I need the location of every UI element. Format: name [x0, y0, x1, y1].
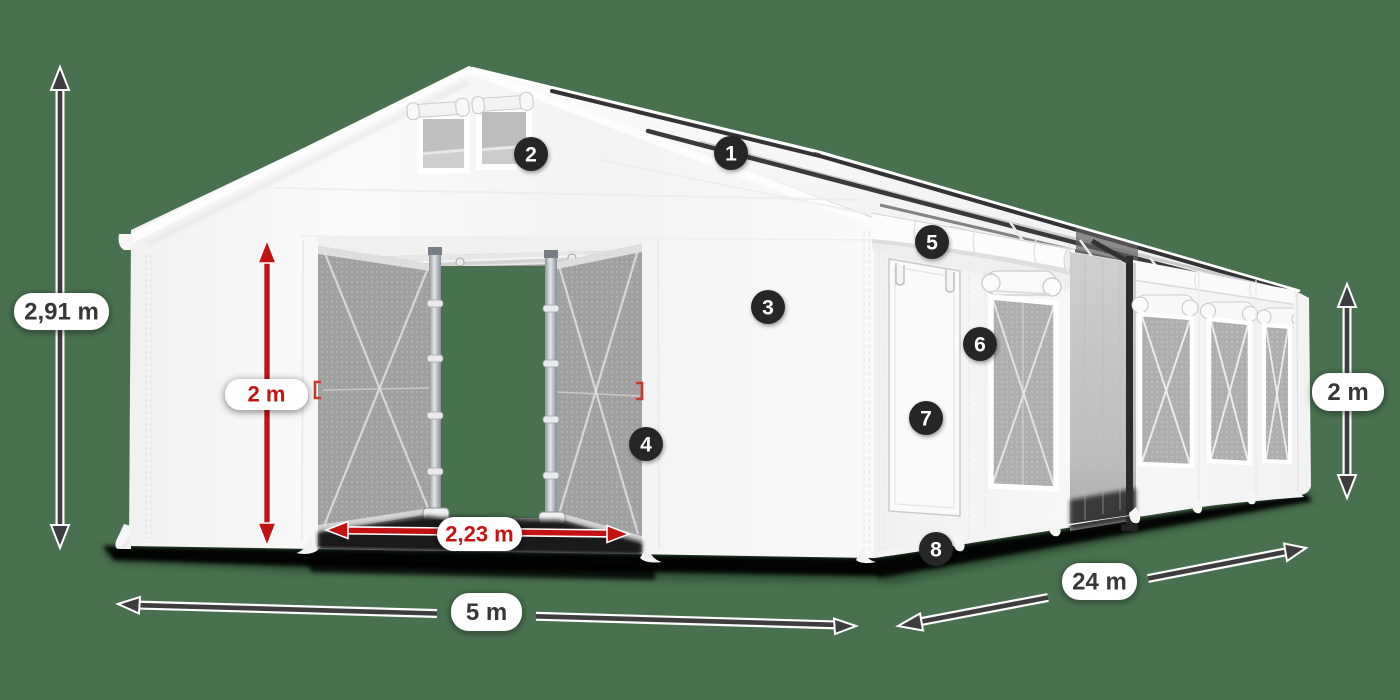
svg-text:7: 7 [920, 408, 932, 431]
svg-text:3: 3 [762, 297, 774, 320]
svg-text:5 m: 5 m [466, 599, 507, 626]
svg-text:4: 4 [640, 434, 652, 457]
svg-text:2,91 m: 2,91 m [24, 299, 99, 326]
svg-text:24 m: 24 m [1072, 569, 1127, 596]
svg-text:6: 6 [974, 334, 986, 357]
svg-text:2: 2 [525, 144, 537, 167]
svg-text:2,23 m: 2,23 m [445, 522, 514, 547]
svg-text:8: 8 [930, 539, 942, 562]
svg-text:5: 5 [926, 232, 938, 255]
svg-text:2 m: 2 m [1327, 379, 1368, 406]
svg-text:1: 1 [725, 143, 737, 166]
svg-text:2 m: 2 m [248, 382, 286, 407]
